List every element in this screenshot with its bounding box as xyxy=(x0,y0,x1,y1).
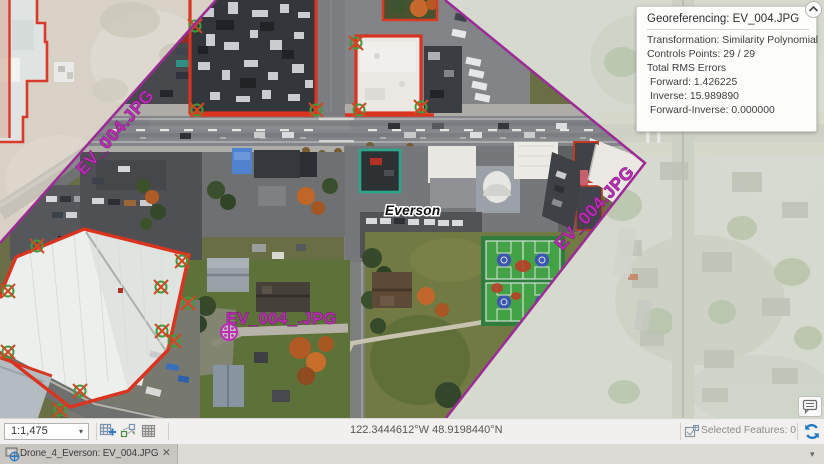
svg-text:Everson: Everson xyxy=(385,203,440,218)
svg-text:EV_004_.JPG: EV_004_.JPG xyxy=(226,310,337,328)
